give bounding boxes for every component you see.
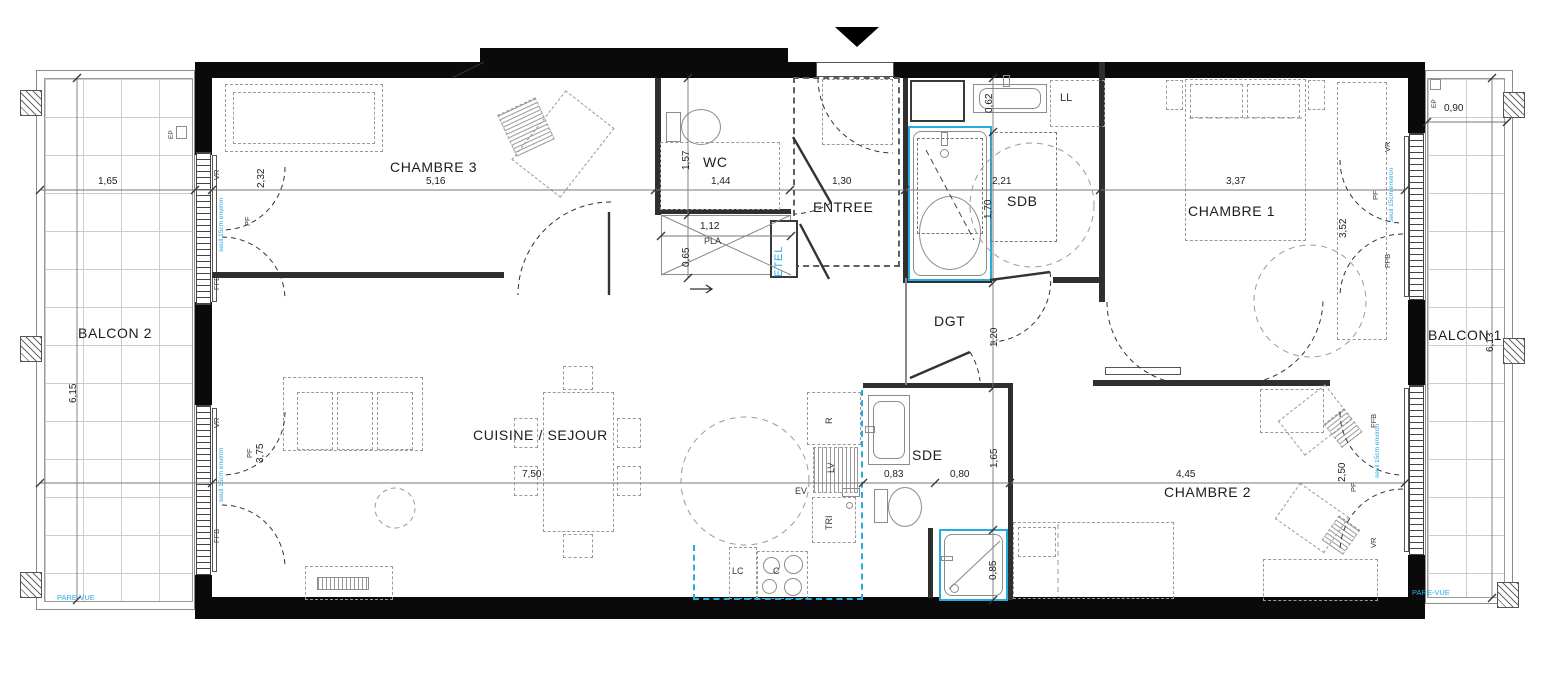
w2-ffb: FFB [213,529,221,543]
dim-sejour-width: 7,50 [522,469,541,480]
ann-placard: PLA [704,237,721,247]
w1-ffb: FFB [213,276,221,290]
room-label-entree: ENTREE [813,200,873,215]
ann-pare-vue-left: PARE-VUE [57,594,95,602]
dim-sde-width2: 0,80 [950,469,969,480]
burner [784,578,802,596]
dim-wc-depth: 1,57 [681,151,692,170]
wardrobe-inner [233,92,375,144]
w2-pf: PF [246,448,254,458]
chambre2-sliding-door [1105,367,1181,375]
window-frame [1404,136,1409,297]
wall-top-right [893,62,1425,78]
ann-cooktop: C [773,567,780,577]
w3-seuil: seuil 15cm environ [1388,168,1395,222]
wall-right-seg [1408,555,1425,619]
dim-shower-width: 0,85 [988,561,999,580]
sde-toilet-tank [874,489,888,523]
sdb-clearance [990,132,1057,242]
ann-lc: LC [732,567,744,577]
room-label-chambre3: CHAMBRE 3 [390,160,477,175]
kitchen-boundary-left [693,545,695,600]
pillow [1247,84,1300,118]
room-label-dgt: DGT [934,314,965,329]
window-chambre1 [1409,133,1424,300]
dim-sejour-depth: 3,75 [255,444,266,463]
room-label-sdb: SDB [1007,194,1038,209]
entrance-triangle-icon [835,27,879,47]
shower-head [941,556,953,561]
w4-seuil: seuil 15cm environ [1374,424,1381,478]
tri-knob [846,502,853,509]
wall-left-seg [195,575,212,619]
turning-circle-sejour [681,417,809,545]
window-chambre3 [196,152,211,305]
shower-drain [950,584,959,593]
wall-top-left [195,62,818,78]
wc-toilet-bowl [681,109,721,145]
ann-washing-machine: LL [1060,92,1072,104]
wall-top-thick [480,48,788,62]
dgt-partition [905,278,907,385]
dim-dgt-depth: 1,20 [989,328,1000,347]
balcony2-post [20,336,42,362]
pillow [1018,527,1056,557]
w4-pf: PF [1350,482,1358,492]
nightstand [1308,80,1325,110]
window-chambre2 [1409,385,1424,555]
ann-sink: EV [795,487,807,497]
ann-ep-left: EP [168,130,175,139]
dim-chambre1-depth: 3,52 [1338,219,1349,238]
wc-toilet-tank [666,112,681,142]
ann-ep-right: EP [1431,99,1438,108]
pillow [1190,84,1243,118]
bathtub-faucet-knob [940,149,949,158]
sde-toilet-bowl [888,487,922,527]
dim-chambre2-width: 4,45 [1176,469,1195,480]
entry-clearance [822,79,893,145]
balcony2-post [20,90,42,116]
sofa-seat [297,392,333,450]
dim-placard-width: 1,12 [700,221,719,232]
dim-chambre3-width: 5,16 [426,176,445,187]
window-frame [1404,388,1409,552]
dim-chambre1-width: 3,37 [1226,176,1245,187]
sofa-seat [337,392,373,450]
room-label-balcon2: BALCON 2 [78,326,152,341]
sink-tap [842,488,860,497]
wall-sdb-bottom2 [1053,277,1099,283]
dim-wc-width: 1,44 [711,176,730,187]
w3-pf: PF [1372,190,1380,200]
w2-seuil: seuil 15cm environ [218,448,225,502]
room-label-chambre2: CHAMBRE 2 [1164,485,1251,500]
ann-pare-vue-right: PARE-VUE [1412,589,1450,597]
wall-left-seg [195,62,212,155]
chair [563,366,593,390]
ann-dishwasher: LV [827,463,837,473]
burner [784,555,803,574]
wall-chambre2-top [1093,380,1330,386]
washing-machine-zone [1050,80,1105,127]
wall-right-seg [1408,300,1425,385]
room-label-cuisine-sejour: CUISINE / SEJOUR [473,428,608,443]
dim-balcon1-width: 0,90 [1444,103,1463,114]
dim-sdb-basin: 0,62 [984,94,995,113]
sdb-tap [1003,75,1010,87]
window-sejour [196,405,211,575]
dim-sdb-width: 2,21 [992,176,1011,187]
window-frame [212,408,217,572]
sde-tap [865,426,875,433]
w3-vr: VR [1384,142,1392,152]
dim-sde-depth: 1,65 [989,449,1000,468]
wall-bottom [195,597,1425,619]
w1-seuil: seuil 15cm environ [218,198,225,252]
room-label-sde: SDE [912,448,943,463]
balcony2-post [20,572,42,598]
side-table-circle [375,488,415,528]
dim-bathtub-length: 1,70 [983,200,994,219]
dim-balcon1-depth: 6,13 [1485,333,1496,352]
clearance-zone [1263,559,1378,601]
balcony1-post [1503,338,1525,364]
w1-vr: VR [213,170,221,180]
dim-placard-depth: 0,65 [681,248,692,267]
dim-sde-width1: 0,83 [884,469,903,480]
dim-entree-width: 1,30 [832,176,851,187]
w1-pf: PF [244,216,252,226]
wall-left-seg [195,302,212,405]
tv [317,577,369,590]
ann-etel: ETEL [773,245,785,277]
sde-basin-inner [873,401,905,459]
balcony1-post [1497,582,1519,608]
entry-door-leaf [816,62,894,77]
wall-shower [928,528,933,598]
ep-marker [1430,79,1441,90]
burner [762,579,777,594]
dining-table [543,392,614,532]
kitchen-boundary-right [861,390,863,600]
w4-vr: VR [1370,538,1378,548]
chair [563,534,593,558]
dim-balcon2-width: 1,65 [98,176,117,187]
dim-chambre3-depth: 2,32 [256,169,267,188]
bathtub-clearance [917,138,983,234]
w2-vr: VR [213,418,221,428]
kitchen-boundary-bottom [693,598,863,600]
sdb-duct [910,80,965,122]
clearance-zone [1337,82,1387,340]
wall-sejour-top [212,272,504,278]
wall-right-seg [1408,62,1425,133]
bathtub-faucet [941,132,948,146]
nightstand [1166,80,1183,110]
ann-tri: TRI [825,516,835,531]
wall-sde-top [863,383,1013,388]
dim-chambre2-depth: 2,50 [1337,463,1348,482]
balcony1-post [1503,92,1525,118]
ep-marker [176,126,187,139]
room-label-wc: WC [703,155,728,170]
ann-fridge: R [825,418,835,425]
w3-ffb: FFB [1384,254,1392,268]
flow-arrow [690,285,712,293]
sofa-seat [377,392,413,450]
dim-balcon2-depth: 6,15 [68,384,79,403]
room-label-chambre1: CHAMBRE 1 [1188,204,1275,219]
chair [617,466,641,496]
chair [617,418,641,448]
floor-plan: CHAMBRE 3WCENTREESDBCHAMBRE 1BALCON 2BAL… [0,0,1547,699]
